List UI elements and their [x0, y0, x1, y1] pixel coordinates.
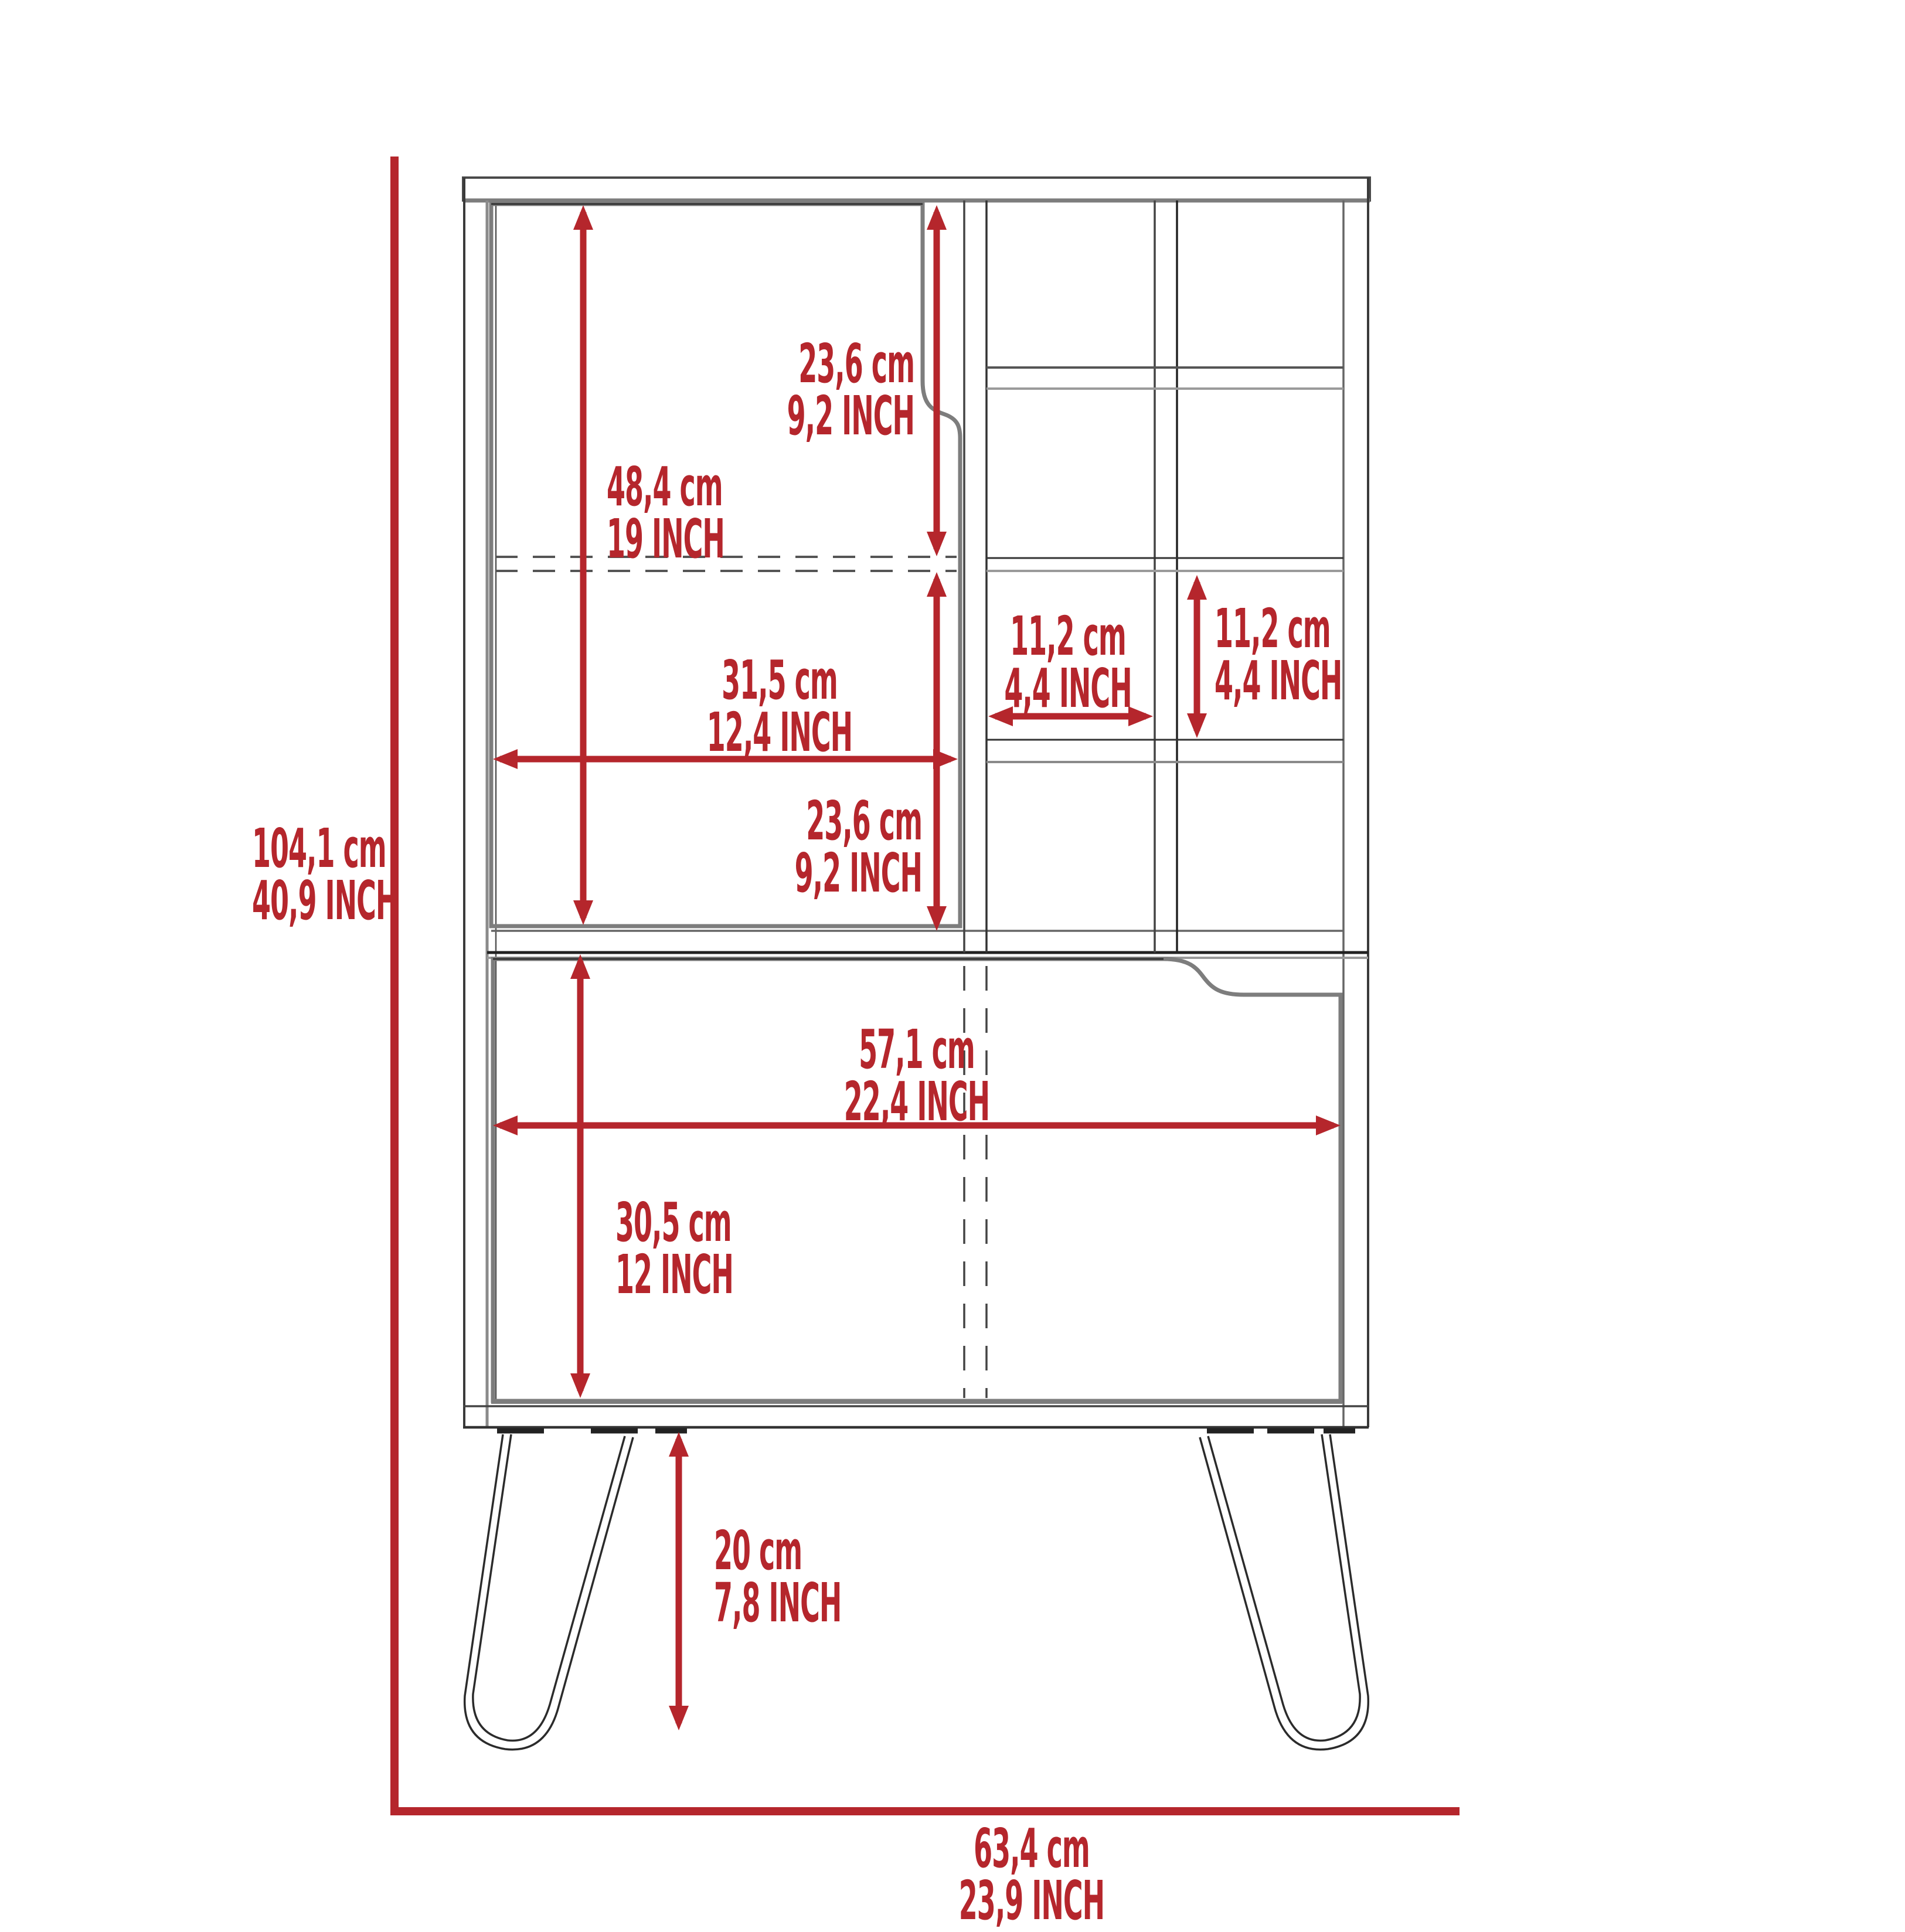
furniture-dimension-diagram: 104,1 cm 40,9 INCH 63,4 cm 23,9 INCH 48,…	[0, 0, 1905, 1905]
dim-label-upper-door-width: 31,5 cm 12,4 INCH	[648, 654, 911, 758]
upper-section-inch: 9,2 INCH	[768, 390, 914, 442]
dim-label-leg-height: 20 cm 7,8 INCH	[714, 1525, 841, 1629]
dim-label-overall-width: 63,4 cm 23,9 INCH	[900, 1822, 1164, 1927]
dim-label-cubby-width: 11,2 cm 4,4 INCH	[980, 610, 1156, 715]
dim-label-lower-door-height: 30,5 cm 12 INCH	[615, 1196, 733, 1301]
cubby-width-cm: 11,2 cm	[980, 610, 1156, 662]
cubby-height-inch: 4,4 INCH	[1215, 655, 1342, 707]
lower-section-inch: 9,2 INCH	[775, 847, 922, 899]
upper-door-width-inch: 12,4 INCH	[648, 706, 911, 758]
dim-label-lower-section-height: 23,6 cm 9,2 INCH	[775, 795, 922, 899]
lower-door-height-inch: 12 INCH	[615, 1249, 733, 1301]
cabinet-line-drawing	[0, 0, 1905, 1905]
leg-height-cm: 20 cm	[714, 1525, 841, 1577]
upper-door-height-cm: 48,4 cm	[607, 461, 724, 513]
upper-section-cm: 23,6 cm	[768, 338, 914, 390]
wine-rack-grid	[964, 200, 1343, 953]
overall-height-inch: 40,9 INCH	[252, 875, 397, 927]
hairpin-leg-left	[465, 1434, 633, 1750]
lower-door-width-cm: 57,1 cm	[785, 1023, 1049, 1076]
lower-section-cm: 23,6 cm	[775, 795, 922, 847]
overall-height-cm: 104,1 cm	[252, 822, 397, 875]
dim-label-cubby-height: 11,2 cm 4,4 INCH	[1215, 603, 1342, 707]
dim-label-upper-door-height: 48,4 cm 19 INCH	[607, 461, 724, 565]
hairpin-leg-right	[1200, 1434, 1368, 1750]
lower-door-height-cm: 30,5 cm	[615, 1196, 733, 1249]
dim-label-upper-section-height: 23,6 cm 9,2 INCH	[768, 338, 914, 442]
cubby-height-cm: 11,2 cm	[1215, 603, 1342, 655]
lower-door-width-inch: 22,4 INCH	[785, 1076, 1049, 1128]
overall-width-inch: 23,9 INCH	[900, 1875, 1164, 1927]
hairpin-legs	[465, 1434, 1369, 1750]
dim-label-overall-height: 104,1 cm 40,9 INCH	[252, 822, 397, 927]
upper-door-width-cm: 31,5 cm	[648, 654, 911, 706]
dim-label-lower-door-width: 57,1 cm 22,4 INCH	[785, 1023, 1049, 1128]
overall-width-cm: 63,4 cm	[900, 1822, 1164, 1875]
top-panel	[463, 178, 1370, 200]
hidden-shelf-dashed-lines	[495, 557, 957, 571]
upper-door-height-inch: 19 INCH	[607, 513, 724, 565]
leg-height-inch: 7,8 INCH	[714, 1577, 841, 1629]
cubby-width-inch: 4,4 INCH	[980, 662, 1156, 715]
